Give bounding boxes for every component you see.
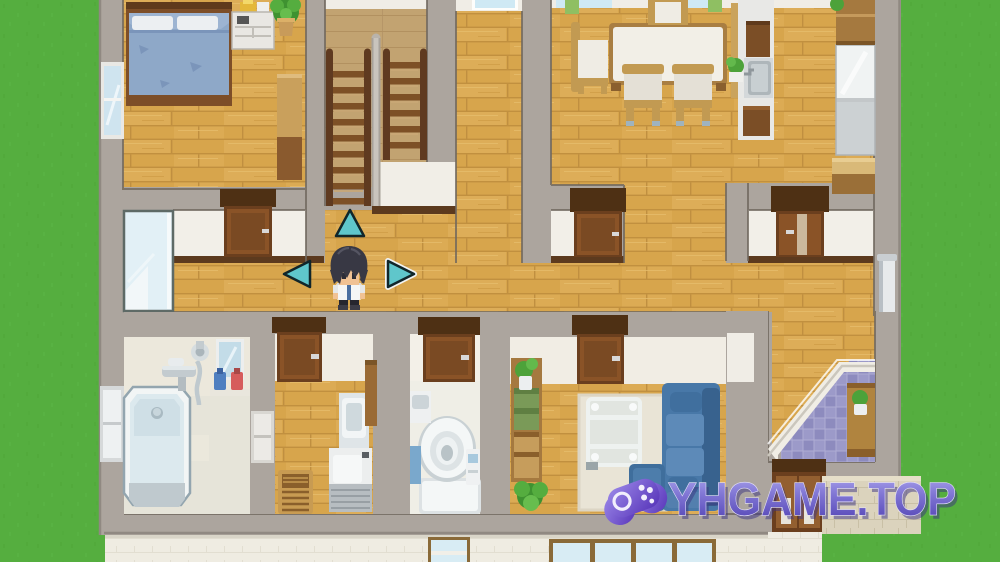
- svg-text:YHGAME.TOP: YHGAME.TOP: [668, 473, 956, 525]
